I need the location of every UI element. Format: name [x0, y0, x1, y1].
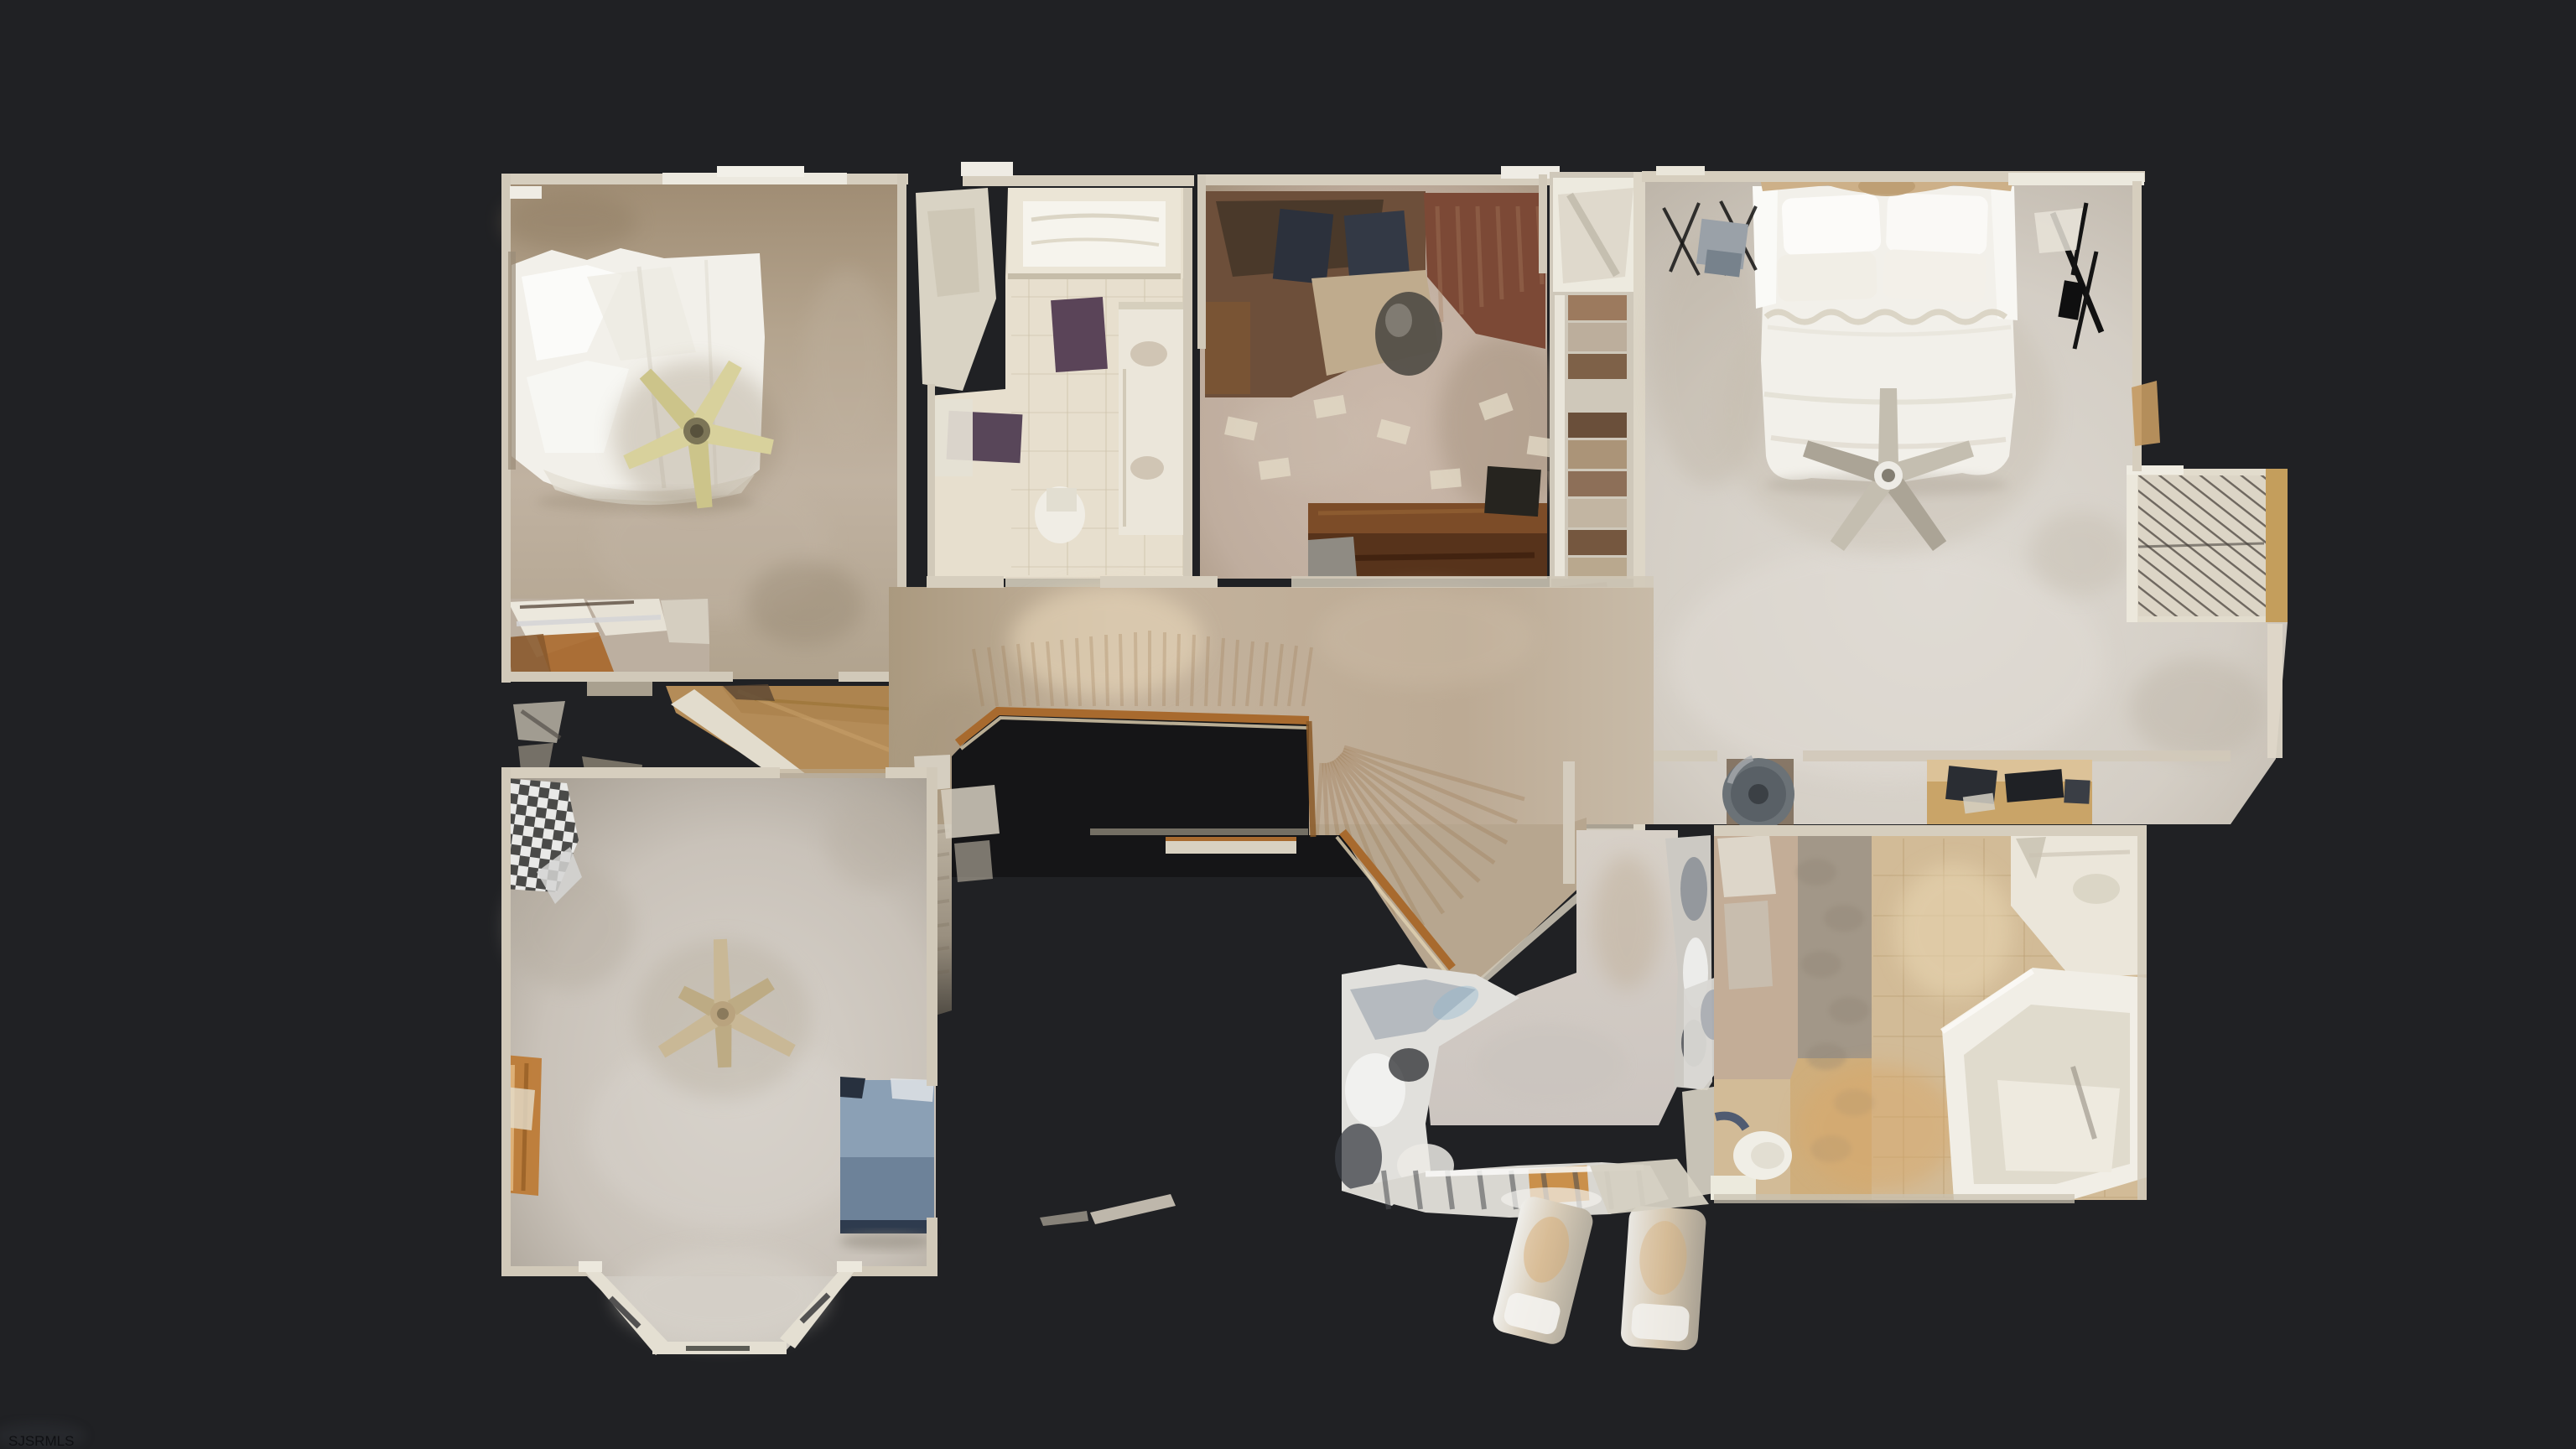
svg-text:SJSRMLS: SJSRMLS	[8, 1433, 74, 1449]
